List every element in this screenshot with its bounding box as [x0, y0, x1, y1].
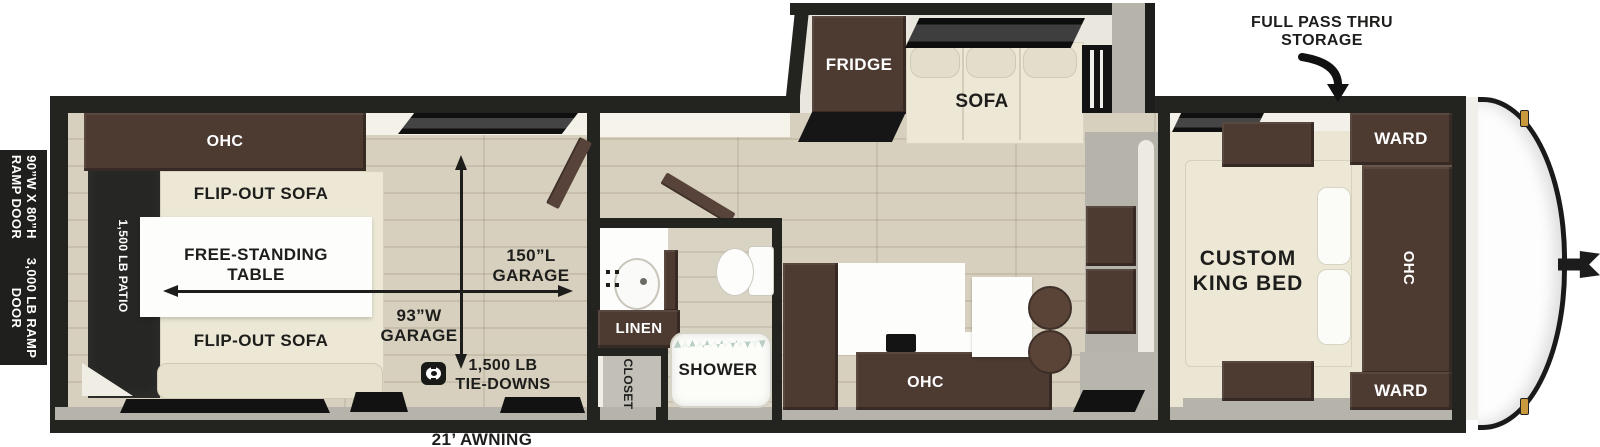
toilet-bowl — [716, 248, 754, 296]
garage-length-arrow — [163, 285, 573, 297]
slideout-right-wall — [1112, 3, 1155, 113]
ramp-door-size-label: 90”W X 80”H RAMP DOOR — [7, 137, 39, 257]
wall-left-ramp-door — [50, 96, 70, 433]
garage-bottom-window-1 — [120, 399, 330, 413]
arrowhead-up-icon — [455, 155, 467, 170]
garage-bottom-window-3 — [500, 397, 585, 413]
marker-light-top — [1520, 110, 1529, 127]
bedroom-ohc-label: OHC — [1401, 246, 1417, 290]
front-cap — [1478, 97, 1567, 430]
garage-length-label: 150”L GARAGE — [471, 246, 591, 286]
king-bed-label: CUSTOM KING BED — [1161, 247, 1335, 297]
wardrobe-top-label: WARD — [1374, 129, 1428, 149]
sink-drain-dot — [640, 278, 647, 285]
kitchen-island — [972, 277, 1032, 357]
free-standing-table-label: FREE-STANDING TABLE — [156, 245, 356, 285]
flip-out-sofa-top-label: FLIP-OUT SOFA — [161, 184, 361, 204]
living-top-wall-band — [600, 113, 790, 137]
pass-thru-storage-label: FULL PASS THRU STORAGE — [1232, 14, 1412, 51]
vanity-side-cabinet — [664, 250, 678, 312]
wall-bottom — [50, 420, 1466, 433]
island-stool-2 — [1028, 330, 1072, 374]
sofa-headrest-2 — [966, 46, 1016, 78]
garage-bottom-window-2 — [350, 392, 408, 412]
rv-floorplan: 90”W X 80”H RAMP DOOR 3,000 LB RAMP DOOR… — [0, 0, 1600, 447]
wardrobe-top: WARD — [1350, 113, 1452, 165]
wall-front-bedroom — [1452, 96, 1466, 433]
sofa-headrest-3 — [1023, 46, 1077, 78]
bathroom-top-wall — [592, 218, 782, 228]
vanity-faucet-icon — [606, 270, 610, 274]
garage-sofa-bolster — [157, 363, 383, 399]
kitchen-counter-l — [838, 263, 965, 342]
arrowhead-left-icon — [163, 285, 178, 297]
garage-ohc-cabinet: OHC — [84, 113, 366, 171]
garage-width-label: 93”W GARAGE — [359, 306, 479, 346]
slideout-side-window — [1082, 45, 1112, 113]
vanity-sink-basin — [614, 258, 660, 310]
flip-out-sofa-bottom-label: FLIP-OUT SOFA — [161, 331, 361, 351]
fridge-counter — [798, 112, 906, 142]
ramp-door-capacity-label: 3,000 LB RAMP DOOR — [7, 248, 39, 368]
slideout-sofa-label: SOFA — [932, 91, 1032, 113]
slideout-top-window — [905, 18, 1085, 48]
awning-label: 21’ AWNING — [412, 430, 552, 447]
bed-cabinet-bottom — [1222, 361, 1314, 401]
sofa-headrest-1 — [910, 46, 960, 78]
shower-label: SHOWER — [658, 360, 778, 380]
tie-downs-label: 1,500 LB TIE-DOWNS — [433, 357, 573, 395]
entry-door-step — [1073, 390, 1145, 412]
wall-top-left — [50, 96, 800, 113]
cooktop — [886, 334, 916, 352]
wardrobe-bottom: WARD — [1350, 372, 1452, 410]
linen-label: LINEN — [616, 320, 663, 338]
entertainment-panel-upper — [1086, 206, 1136, 266]
marker-light-bottom — [1520, 398, 1529, 415]
slideout-top-wall — [790, 3, 1145, 15]
garage-roof-vent — [398, 113, 578, 134]
bed-cabinet-top — [1222, 122, 1314, 167]
closet-label: CLOSET — [621, 349, 635, 419]
fridge: FRIDGE — [812, 16, 906, 114]
patio-label: 1,500 LB PATIO — [114, 206, 130, 326]
kitchen-ohc-label: OHC — [868, 374, 983, 393]
linen-cabinet: LINEN — [598, 310, 680, 348]
entertainment-panel-lower — [1086, 269, 1136, 334]
kitchen-pantry — [783, 263, 838, 410]
island-stool-1 — [1028, 286, 1072, 330]
pass-thru-arrow-icon — [1295, 53, 1349, 103]
fridge-label: FRIDGE — [826, 55, 893, 75]
wardrobe-bottom-label: WARD — [1374, 381, 1428, 401]
arrowhead-right-icon — [558, 285, 573, 297]
garage-ohc-label: OHC — [207, 133, 244, 152]
